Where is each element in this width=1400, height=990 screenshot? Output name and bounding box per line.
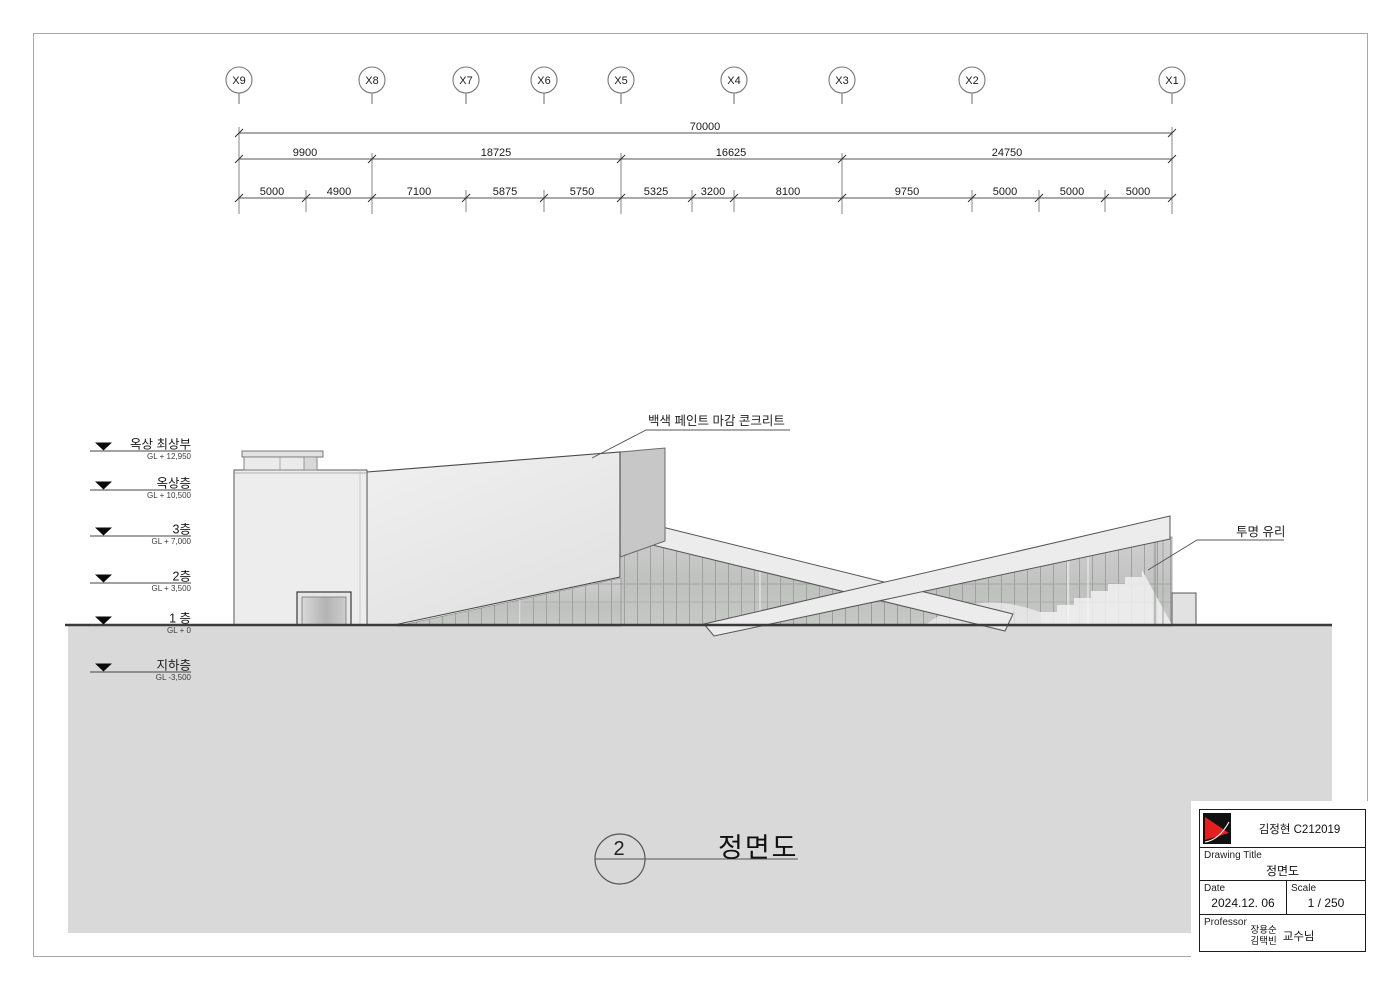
sheet-border (33, 33, 1368, 957)
logo-icon (1203, 813, 1231, 844)
drawing-title-label: Drawing Title (1204, 850, 1262, 861)
professor-name-1: 장용순 (1251, 925, 1277, 936)
scale-label: Scale (1291, 883, 1316, 894)
title-block: 김정현 C212019 Drawing Title 정면도 Date 2024.… (1199, 809, 1366, 952)
date-cell: Date 2024.12. 06 (1200, 881, 1286, 914)
professor-label: Professor (1204, 917, 1247, 928)
date-label: Date (1204, 883, 1225, 894)
professor-name-2: 김택빈 (1251, 936, 1277, 947)
student-id: 김정현 C212019 (1234, 821, 1365, 837)
title-block-header-row: 김정현 C212019 (1200, 810, 1365, 848)
scale-cell: Scale 1 / 250 (1286, 881, 1365, 914)
date-scale-row: Date 2024.12. 06 Scale 1 / 250 (1200, 881, 1365, 915)
professor-suffix: 교수님 (1283, 928, 1315, 944)
drawing-title-row: Drawing Title 정면도 (1200, 848, 1365, 881)
studio-logo (1200, 810, 1234, 847)
professor-row: Professor 장용순 김택빈 교수님 (1200, 915, 1365, 950)
drawing-sheet: X9 X8 X7 X6 X5 X4 (0, 0, 1400, 990)
